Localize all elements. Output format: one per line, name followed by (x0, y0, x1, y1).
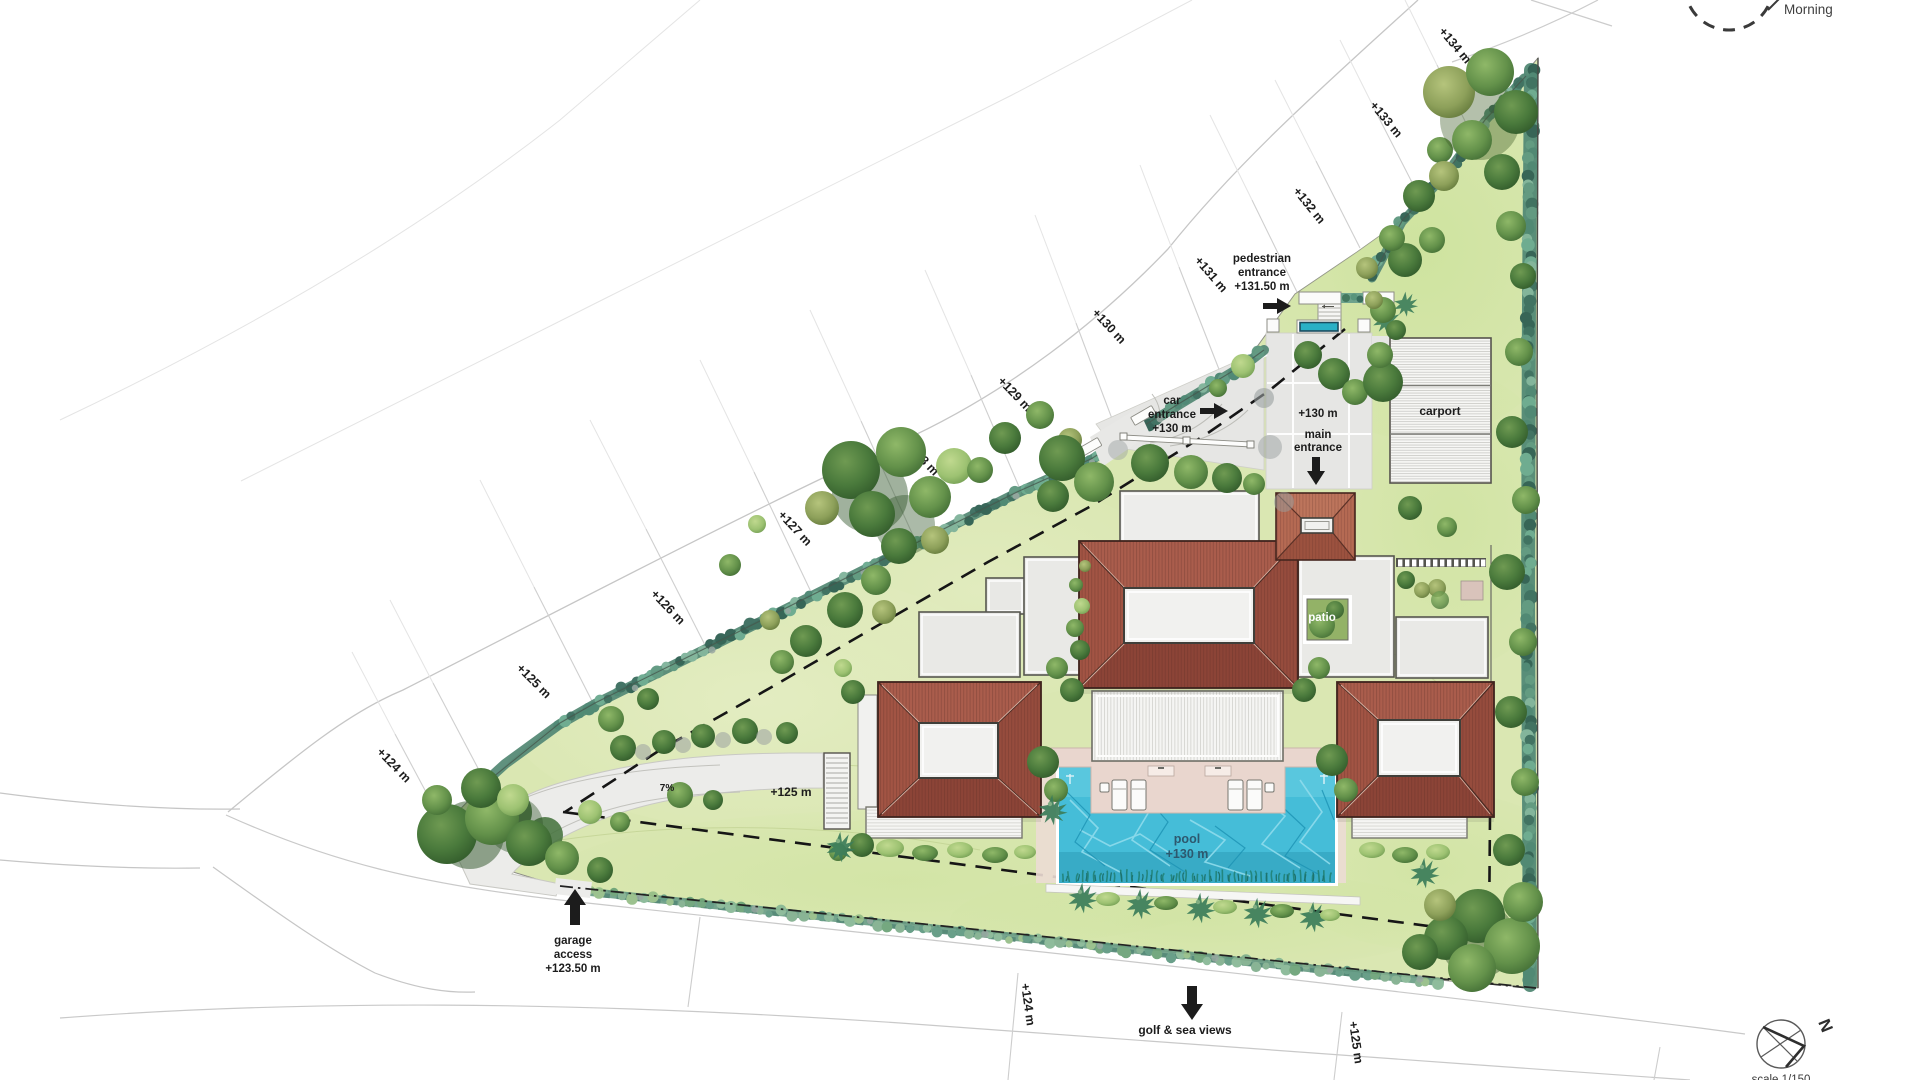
svg-text:golf & sea views: golf & sea views (1138, 1023, 1232, 1037)
svg-text:+130 m: +130 m (1166, 847, 1209, 861)
svg-text:entrance: entrance (1238, 267, 1286, 279)
svg-text:+125 m: +125 m (770, 785, 811, 799)
svg-text:+123.50 m: +123.50 m (545, 963, 600, 975)
svg-text:access: access (554, 949, 592, 961)
svg-text:garage: garage (554, 935, 592, 947)
svg-text:+130 m: +130 m (1298, 408, 1337, 420)
svg-text:entrance: entrance (1294, 442, 1342, 454)
svg-text:Morning: Morning (1784, 2, 1833, 17)
svg-text:scale 1/150: scale 1/150 (1752, 1074, 1811, 1080)
svg-text:patio: patio (1308, 612, 1335, 624)
svg-text:+130 m: +130 m (1152, 423, 1191, 435)
svg-text:pedestrian: pedestrian (1233, 253, 1291, 265)
svg-text:main: main (1305, 429, 1332, 441)
svg-text:7%: 7% (660, 783, 675, 794)
svg-text:pool: pool (1174, 832, 1200, 846)
svg-text:carport: carport (1419, 404, 1460, 418)
svg-text:entrance: entrance (1148, 409, 1196, 421)
svg-text:+131.50 m: +131.50 m (1234, 281, 1289, 293)
svg-text:car: car (1163, 395, 1181, 407)
